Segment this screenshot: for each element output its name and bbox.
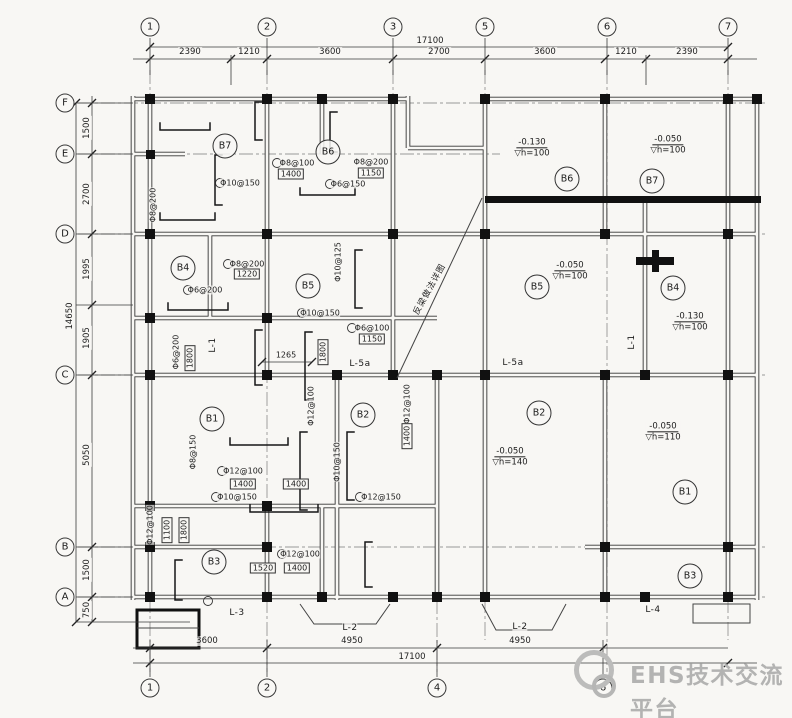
rebar-callout: 1800 <box>185 345 196 371</box>
grid-bubble-top: 3 <box>384 18 403 37</box>
dim-top-total: 17100 <box>415 36 444 46</box>
rebar-callout: 1400 <box>278 169 304 180</box>
rebar-callout: Φ10@125 <box>334 242 343 282</box>
rebar-callout: Φ8@200 <box>230 260 265 269</box>
room-label: B7 <box>213 134 238 159</box>
dim-left-segment: 2700 <box>82 182 92 206</box>
rebar-callout: Φ10@150 <box>220 179 260 188</box>
dim-left-segment: 1905 <box>82 326 92 350</box>
grid-bubble-top: 2 <box>258 18 277 37</box>
dim-top-segment: 1210 <box>237 47 261 57</box>
room-label: B7 <box>640 169 665 194</box>
grid-bubble-left: F <box>56 94 75 113</box>
grid-bubble-left: A <box>56 588 75 607</box>
level-mark: -0.050▽h=100 <box>650 134 685 155</box>
rebar-callout: Φ12@100 <box>280 550 320 559</box>
grid-bubble-left: D <box>56 225 75 244</box>
level-mark: -0.050▽h=140 <box>492 446 527 467</box>
dim-left-segment: 1995 <box>82 257 92 281</box>
grid-bubble-bottom: 1 <box>141 679 160 698</box>
level-value: -0.130 <box>674 311 705 322</box>
plan-linework <box>0 0 792 718</box>
level-note: ▽h=100 <box>672 323 707 333</box>
level-value: -0.050 <box>554 260 585 271</box>
level-value: -0.130 <box>516 137 547 148</box>
beam-label: L-2 <box>342 623 357 633</box>
room-label: B1 <box>200 407 225 432</box>
rebar-callout: 1520 <box>250 563 276 574</box>
dim-left-segment: 750 <box>82 601 92 619</box>
dim-left-segment: 5050 <box>82 443 92 467</box>
grid-bubble-left: E <box>56 145 75 164</box>
level-note-text: h=100 <box>657 146 686 156</box>
room-label: B6 <box>316 140 341 165</box>
beam-label: L-3 <box>229 608 244 618</box>
dim-top-segment: 3600 <box>533 47 557 57</box>
grid-bubble-left: C <box>56 366 75 385</box>
rebar-callout: 1400 <box>230 479 256 490</box>
dim-left-segment: 1500 <box>82 558 92 582</box>
level-mark: -0.050▽h=110 <box>645 421 680 442</box>
rebar-callout: 1150 <box>358 168 384 179</box>
rebar-callout: Φ12@100 <box>146 505 155 545</box>
room-label: B3 <box>678 564 703 589</box>
dim-top-segment: 2700 <box>427 47 451 57</box>
rebar-callout: Φ12@100 <box>223 467 263 476</box>
dim-bottom-segment: 3600 <box>195 636 219 646</box>
rebar-callout: 1400 <box>284 563 310 574</box>
beam-label: L-1 <box>208 337 218 352</box>
room-label: B5 <box>296 274 321 299</box>
rebar-callout: Φ6@150 <box>331 180 366 189</box>
grid-bubble-top: 1 <box>141 18 160 37</box>
beam-label: L-5a <box>502 358 523 368</box>
rebar-callout: Φ12@100 <box>307 386 316 426</box>
room-label: B1 <box>673 480 698 505</box>
room-label: B2 <box>527 401 552 426</box>
rebar-callout: 1800 <box>318 339 329 365</box>
dim-top-segment: 2390 <box>178 47 202 57</box>
rebar-callout: Φ6@100 <box>355 324 390 333</box>
grid-bubble-top: 5 <box>476 18 495 37</box>
level-mark: -0.130▽h=100 <box>672 311 707 332</box>
level-note-text: h=110 <box>652 433 681 443</box>
dim-bottom-segment: 4950 <box>340 636 364 646</box>
level-note-text: h=100 <box>521 149 550 159</box>
beam-label: L-5a <box>349 359 370 369</box>
rebar-callout: Φ10@150 <box>300 309 340 318</box>
beam-label: L-1 <box>627 334 637 349</box>
rebar-callout: Φ8@200 <box>354 158 389 167</box>
room-label: B4 <box>171 256 196 281</box>
level-note: ▽h=140 <box>492 458 527 468</box>
rebar-callout: 1150 <box>359 334 385 345</box>
dim-top-segment: 3600 <box>318 47 342 57</box>
dim-left-total: 14650 <box>65 301 75 330</box>
rebar-callout: Φ10@150 <box>217 493 257 502</box>
rebar-callout: 1100 <box>162 517 173 543</box>
grid-bubble-bottom: 2 <box>258 679 277 698</box>
grid-bubble-top: 7 <box>719 18 738 37</box>
watermark-text: EHS技术交流平台 <box>630 656 792 718</box>
ehs-logo-icon <box>566 648 618 700</box>
dim-top-segment: 1210 <box>614 47 638 57</box>
level-value: -0.050 <box>652 134 683 145</box>
floor-plan-drawing: 1235671246FEDCBA171002390121036002700360… <box>0 0 792 718</box>
dim-left-segment: 1500 <box>82 116 92 140</box>
room-label: B6 <box>555 167 580 192</box>
rebar-callout: Φ6@200 <box>172 335 181 370</box>
level-note-text: h=140 <box>499 458 528 468</box>
grid-bubble-bottom: 4 <box>428 679 447 698</box>
level-note: ▽h=100 <box>514 149 549 159</box>
rebar-callout: Φ6@200 <box>188 286 223 295</box>
dim-bottom-segment: 4950 <box>508 636 532 646</box>
level-note-text: h=100 <box>679 323 708 333</box>
rebar-callout: 1220 <box>234 269 260 280</box>
level-mark: -0.050▽h=100 <box>552 260 587 281</box>
dim-top-segment: 2390 <box>675 47 699 57</box>
rebar-callout: Φ10@150 <box>333 442 342 482</box>
rebar-callout: 1800 <box>179 517 190 543</box>
rebar-callout: Φ12@100 <box>403 384 412 424</box>
beam-label: L-4 <box>645 605 660 615</box>
rebar-callout: 1400 <box>402 423 413 449</box>
rebar-callout: Φ8@100 <box>280 159 315 168</box>
room-label: B3 <box>202 550 227 575</box>
level-note: ▽h=100 <box>552 272 587 282</box>
level-note-text: h=100 <box>559 272 588 282</box>
grid-bubble-left: B <box>56 538 75 557</box>
dim-bottom-total: 17100 <box>397 652 426 662</box>
rebar-callout: Φ8@150 <box>189 435 198 470</box>
grid-bubble-top: 6 <box>598 18 617 37</box>
level-note: ▽h=110 <box>645 433 680 443</box>
level-value: -0.050 <box>494 446 525 457</box>
beam-label: L-2 <box>512 622 527 632</box>
level-value: -0.050 <box>647 421 678 432</box>
rebar-callout: 1265 <box>276 351 296 360</box>
room-label: B5 <box>525 275 550 300</box>
room-label: B2 <box>351 403 376 428</box>
room-label: B4 <box>661 276 686 301</box>
level-note: ▽h=100 <box>650 146 685 156</box>
rebar-callout: 1400 <box>283 479 309 490</box>
rebar-callout: Φ12@150 <box>361 493 401 502</box>
rebar-callout: Φ8@200 <box>149 188 158 223</box>
level-mark: -0.130▽h=100 <box>514 137 549 158</box>
